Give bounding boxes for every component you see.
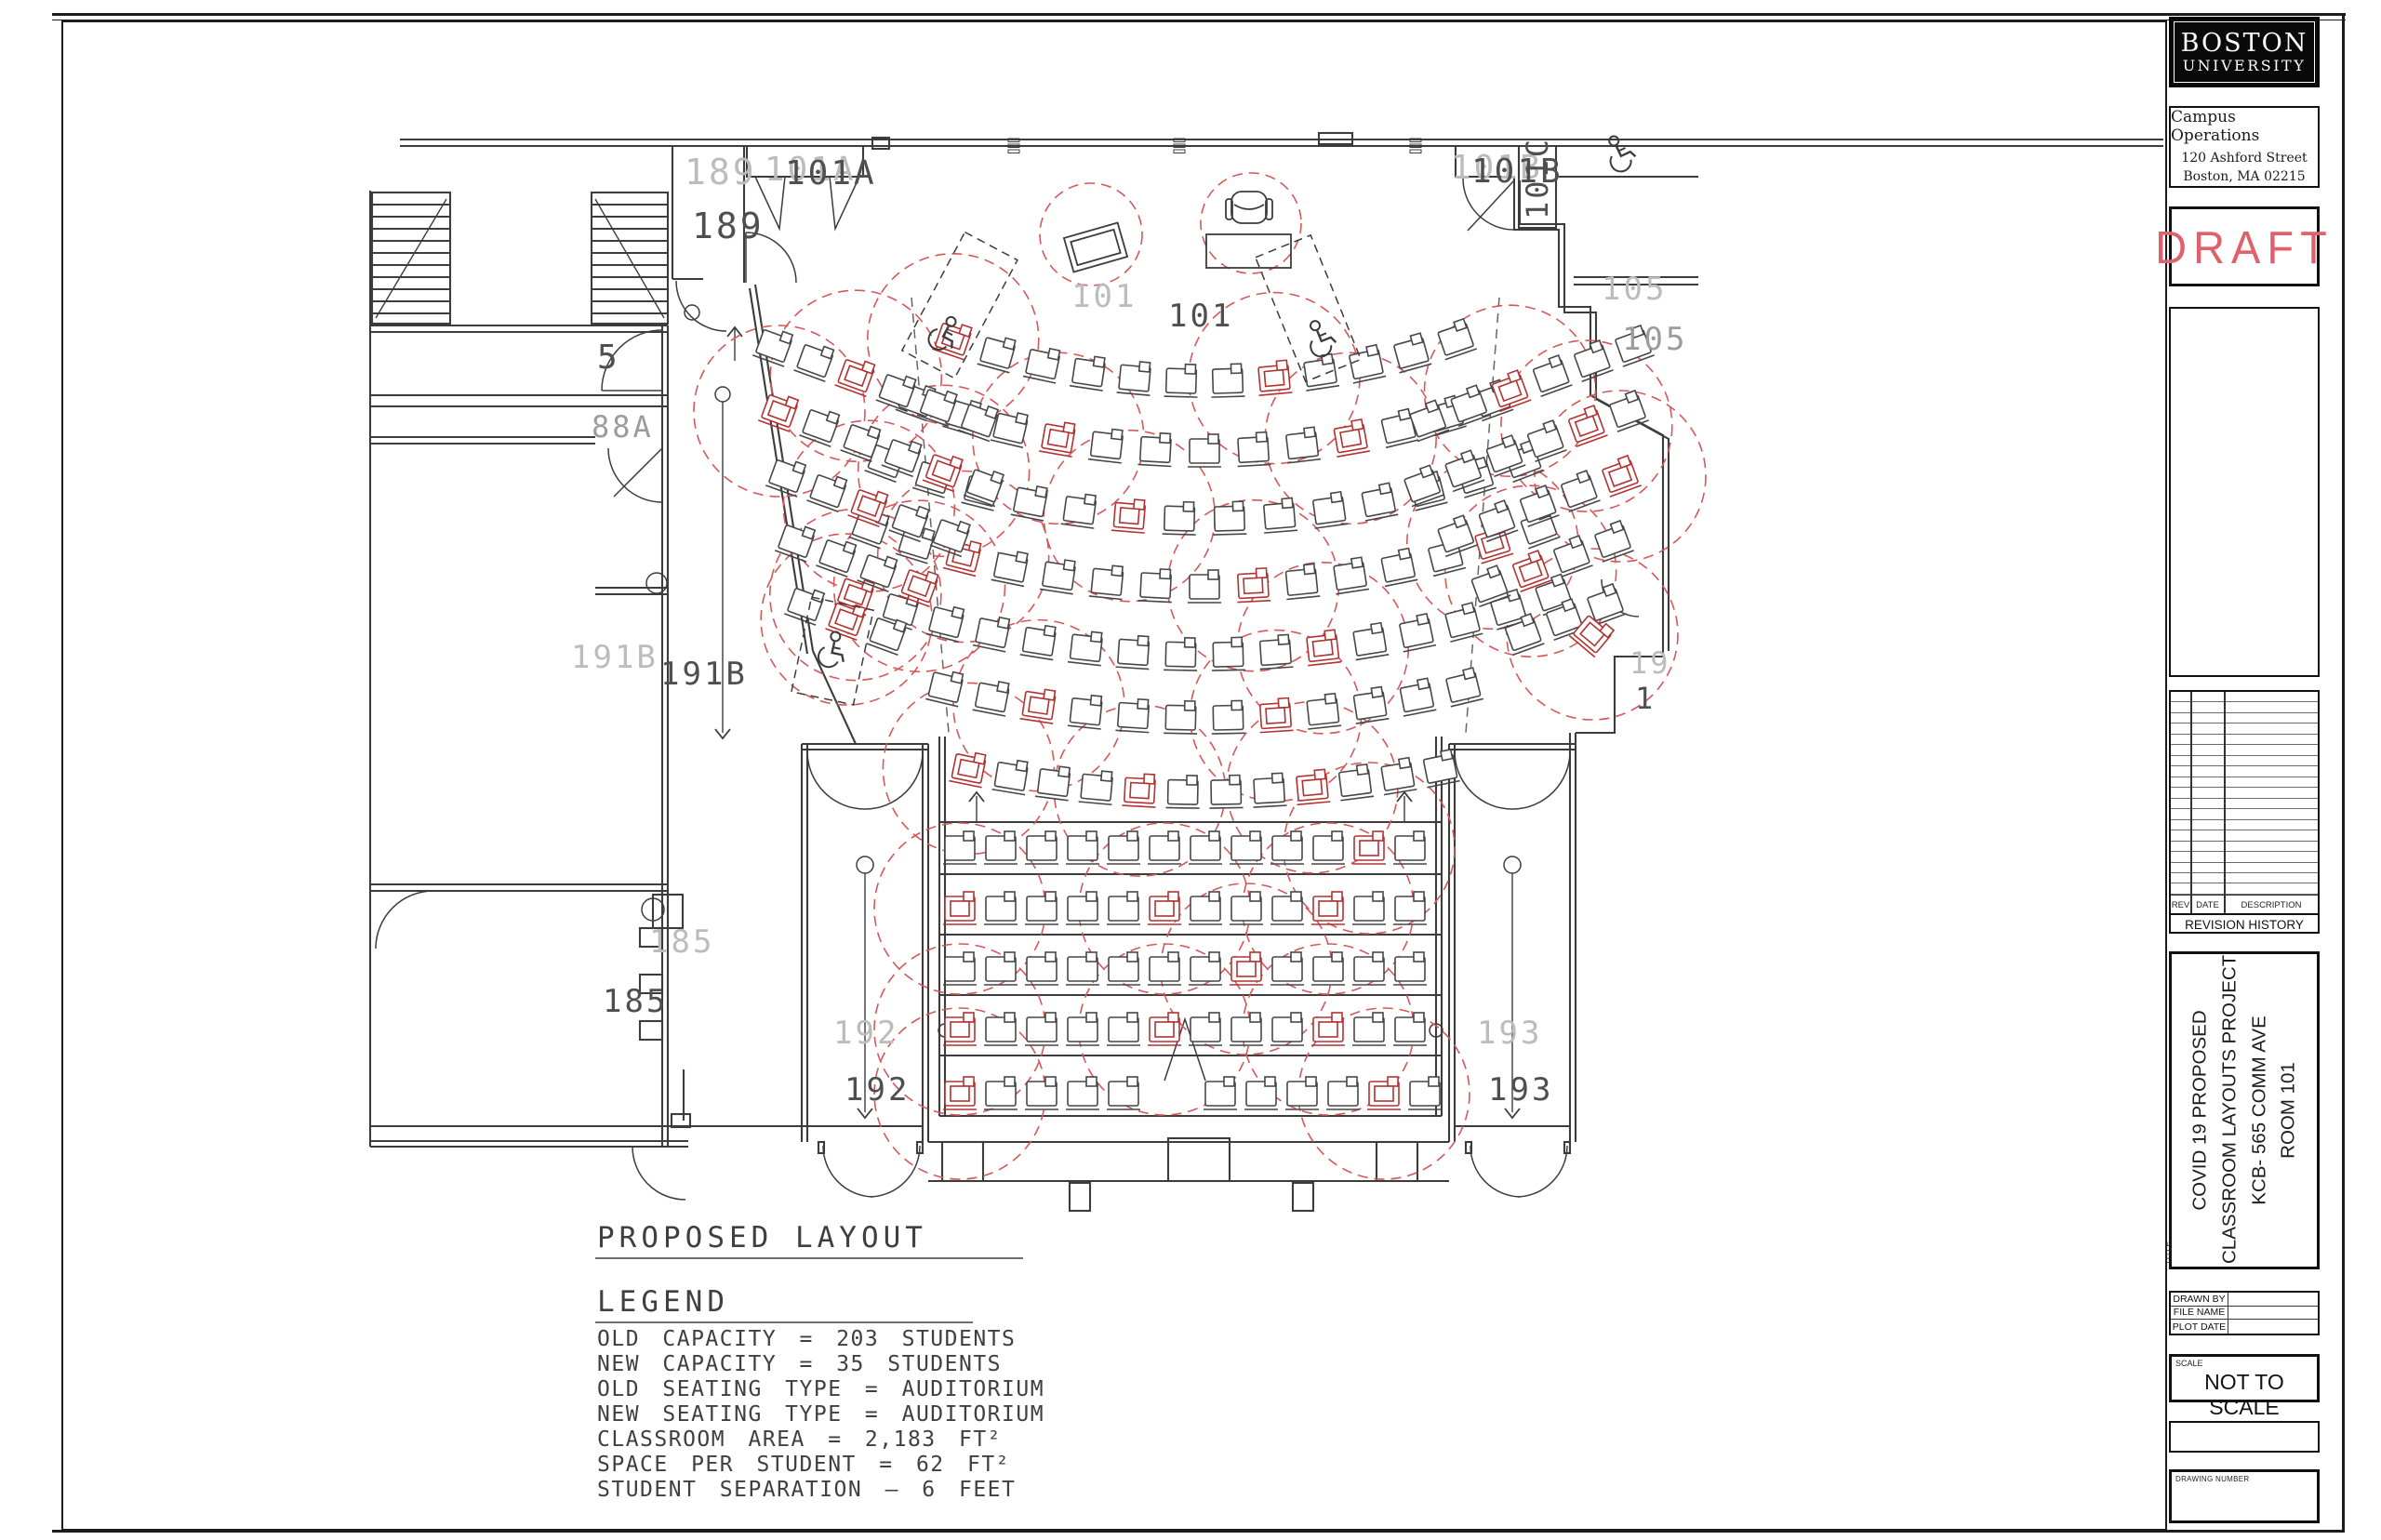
scale-value: NOT TO SCALE <box>2172 1370 2317 1420</box>
svg-text:OLD CAPACITY = 203 STUDENTS: OLD CAPACITY = 203 STUDENTS <box>597 1327 1016 1351</box>
title-line-3: KCB- 565 COMM AVE <box>2244 957 2274 1264</box>
svg-text:CLASSROOM AREA = 2,183 FT²: CLASSROOM AREA = 2,183 FT² <box>597 1427 1002 1452</box>
svg-text:189: 189 <box>685 152 757 192</box>
svg-text:OLD SEATING TYPE = AUDITORIUM: OLD SEATING TYPE = AUDITORIUM <box>597 1377 1044 1401</box>
svg-text:191B: 191B <box>571 639 658 676</box>
floor-plan: 189189101A101A101B101B101C10510510110188… <box>0 0 2381 1540</box>
drawing-info-table: DRAWN BY FILE NAME PLOT DATE <box>2169 1291 2320 1335</box>
drawn-by-value <box>2228 1293 2318 1307</box>
svg-text:193: 193 <box>1477 1015 1542 1052</box>
svg-text:101A: 101A <box>785 154 877 192</box>
svg-text:SPACE PER STUDENT = 62 FT²: SPACE PER STUDENT = 62 FT² <box>597 1453 1010 1477</box>
drawing-number-label: DRAWING NUMBER <box>2175 1475 2249 1483</box>
revision-header-row: REV DATE DESCRIPTION <box>2171 895 2318 914</box>
plot-date-label: PLOT DATE <box>2171 1320 2228 1334</box>
drawing-title: COVID 19 PROPOSED CLASSROOM LAYOUTS PROJ… <box>2185 957 2303 1264</box>
address-dept: Campus Operations <box>2171 108 2318 145</box>
revision-history-table: REV DATE DESCRIPTION REVISION HISTORY <box>2169 690 2320 934</box>
revision-col-divider-2 <box>2224 692 2226 913</box>
svg-text:192: 192 <box>833 1015 898 1052</box>
svg-text:LEGEND: LEGEND <box>597 1285 729 1319</box>
revision-empty-rows <box>2171 692 2318 895</box>
notes-box-empty <box>2169 307 2320 677</box>
draft-text: DRAFT <box>2155 219 2334 273</box>
file-name-value <box>2228 1307 2318 1321</box>
revision-col-divider-1 <box>2190 692 2192 913</box>
scale-box: SCALE NOT TO SCALE <box>2169 1354 2320 1402</box>
svg-text:101: 101 <box>1168 298 1233 335</box>
svg-text:88A: 88A <box>592 409 654 445</box>
svg-text:5: 5 <box>597 339 620 377</box>
address-block: Campus Operations 120 Ashford Street Bos… <box>2169 106 2320 188</box>
svg-text:105: 105 <box>1622 321 1687 358</box>
revision-col-rev: REV <box>2171 896 2190 914</box>
revision-col-date: DATE <box>2190 896 2224 914</box>
plot-date-value <box>2228 1320 2318 1334</box>
svg-text:192: 192 <box>845 1071 910 1109</box>
drawing-number-box: DRAWING NUMBER <box>2169 1469 2320 1523</box>
address-city: Boston, MA 02215 <box>2183 167 2305 186</box>
file-name-label: FILE NAME <box>2171 1307 2228 1321</box>
bu-logo-border <box>2174 21 2315 83</box>
svg-text:189: 189 <box>692 206 765 246</box>
svg-text:PROPOSED LAYOUT: PROPOSED LAYOUT <box>597 1221 927 1255</box>
revision-col-description: DESCRIPTION <box>2224 896 2318 914</box>
svg-text:185: 185 <box>649 923 714 961</box>
svg-text:105: 105 <box>1602 271 1667 308</box>
svg-text:19: 19 <box>1629 645 1671 681</box>
title-side-label: TITLE <box>2163 1241 2173 1265</box>
svg-text:185: 185 <box>603 983 668 1020</box>
address-street: 120 Ashford Street <box>2181 149 2307 167</box>
title-line-1: COVID 19 PROPOSED <box>2185 957 2215 1264</box>
stamp-box-empty <box>2169 1421 2320 1453</box>
title-line-2: CLASSROOM LAYOUTS PROJECT <box>2215 957 2244 1264</box>
svg-text:191B: 191B <box>660 656 748 693</box>
title-box: TITLE COVID 19 PROPOSED CLASSROOM LAYOUT… <box>2169 951 2320 1269</box>
bu-logo: BOSTON UNIVERSITY <box>2169 17 2320 87</box>
svg-text:NEW CAPACITY = 35 STUDENTS: NEW CAPACITY = 35 STUDENTS <box>597 1352 1002 1376</box>
svg-text:1: 1 <box>1635 681 1656 716</box>
svg-text:STUDENT SEPARATION – 6 FEET: STUDENT SEPARATION – 6 FEET <box>597 1478 1016 1502</box>
svg-text:NEW SEATING TYPE = AUDITORIUM: NEW SEATING TYPE = AUDITORIUM <box>597 1402 1044 1427</box>
svg-text:101: 101 <box>1071 278 1137 315</box>
draft-stamp: DRAFT <box>2169 206 2320 286</box>
revision-history-footer: REVISION HISTORY <box>2171 913 2318 935</box>
title-line-4: ROOM 101 <box>2274 957 2304 1264</box>
drawing-sheet: 189189101A101A101B101B101C10510510110188… <box>0 0 2381 1540</box>
svg-text:101C: 101C <box>1520 137 1555 219</box>
scale-label: SCALE <box>2175 1359 2203 1368</box>
drawn-by-label: DRAWN BY <box>2171 1293 2228 1307</box>
svg-text:193: 193 <box>1488 1071 1553 1109</box>
